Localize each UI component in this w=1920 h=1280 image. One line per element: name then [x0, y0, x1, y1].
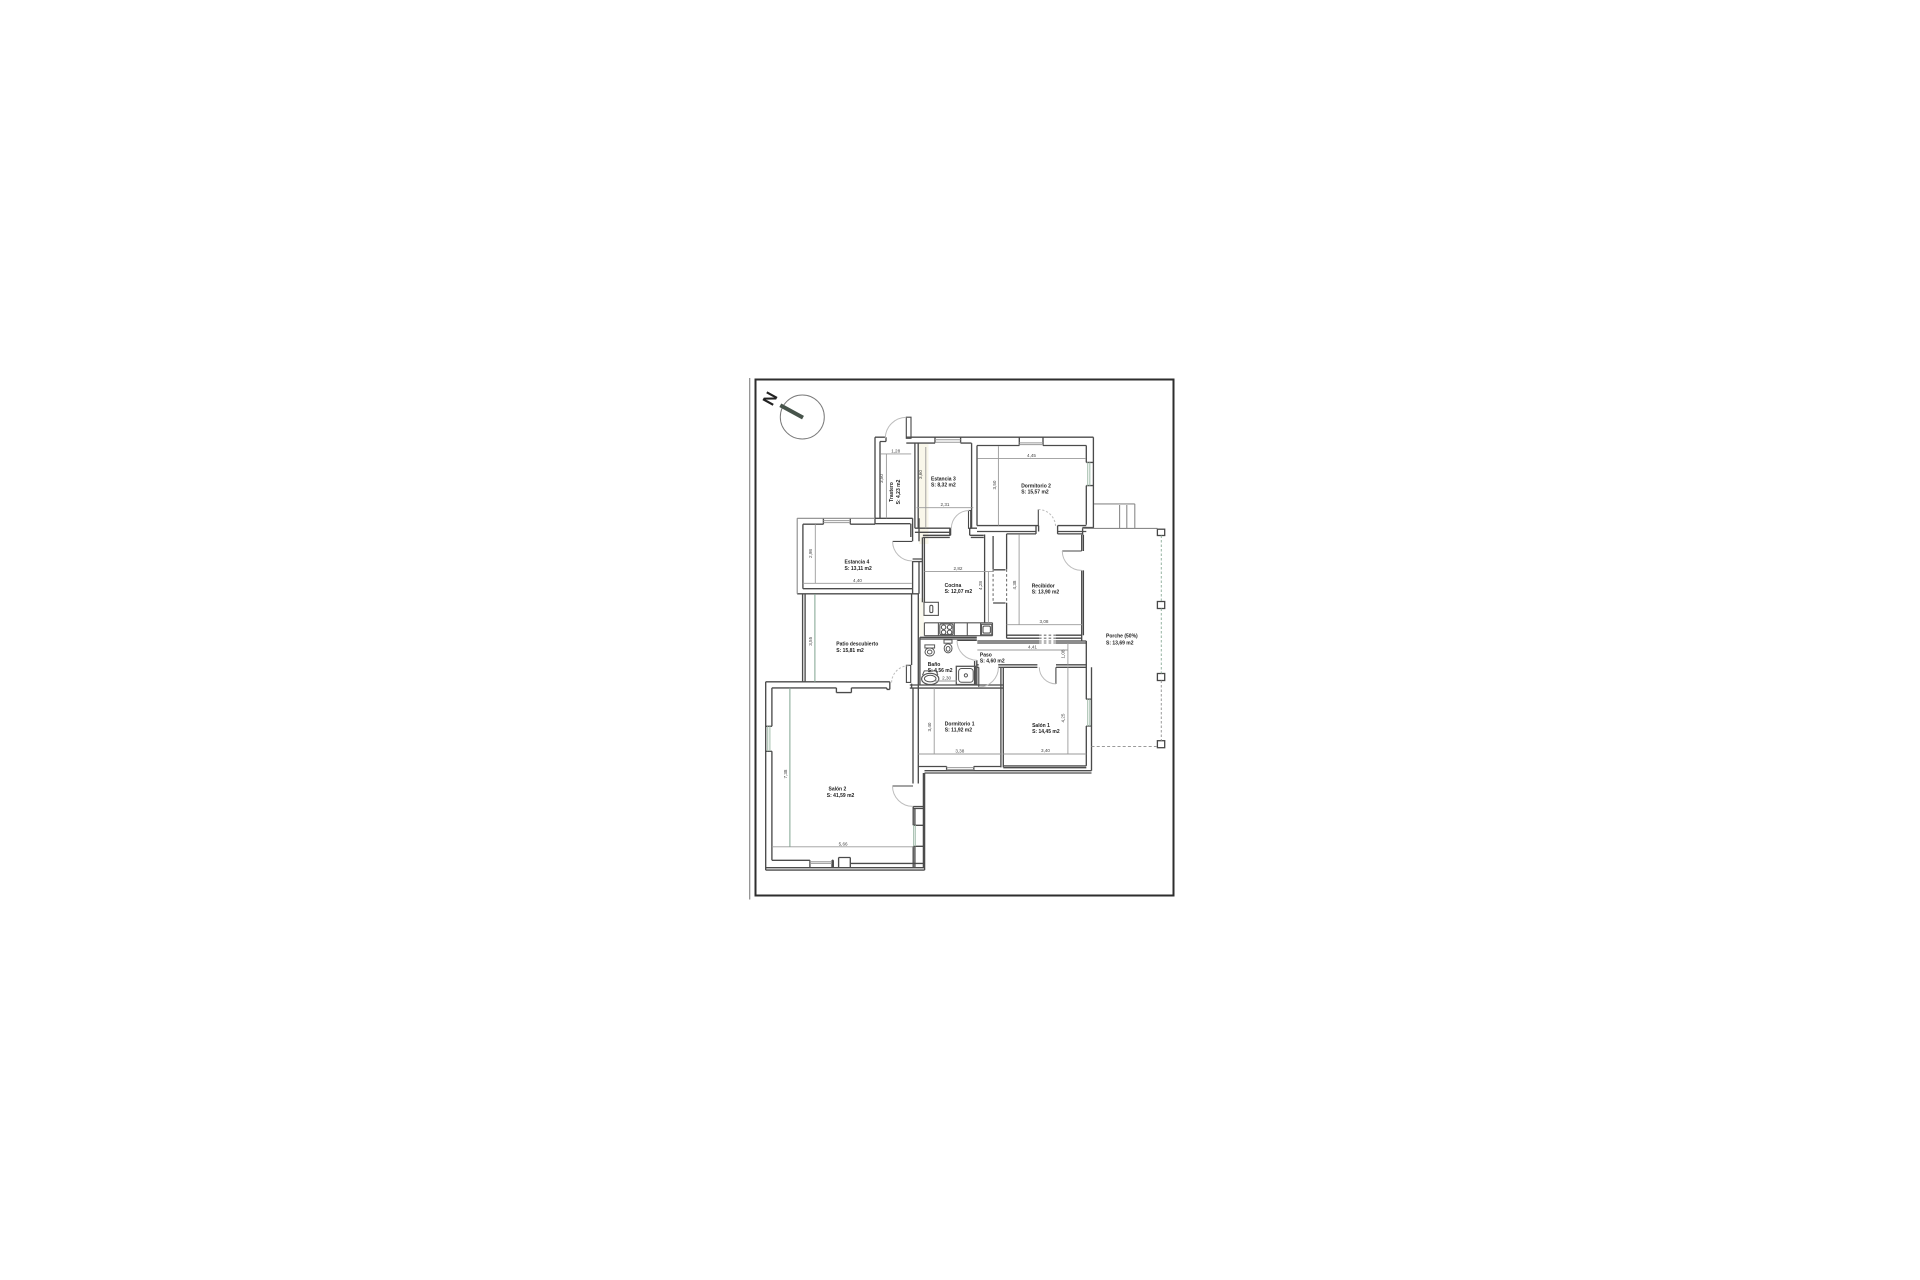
- svg-text:3,40: 3,40: [927, 722, 932, 731]
- svg-text:4,41: 4,41: [1028, 645, 1037, 650]
- svg-text:S: 13,11 m2: S: 13,11 m2: [845, 566, 872, 572]
- svg-text:S: 11,92 m2: S: 11,92 m2: [945, 728, 972, 734]
- svg-text:S: 13,90 m2: S: 13,90 m2: [1032, 590, 1060, 596]
- svg-text:5,66: 5,66: [839, 841, 848, 846]
- svg-text:S: 4,56 m2: S: 4,56 m2: [928, 668, 953, 674]
- svg-text:S: 4,60 m2: S: 4,60 m2: [980, 659, 1005, 665]
- svg-text:S: 15,57 m2: S: 15,57 m2: [1021, 490, 1049, 496]
- svg-text:S: 15,81 m2: S: 15,81 m2: [836, 648, 864, 654]
- svg-text:S: 8,32 m2: S: 8,32 m2: [931, 483, 956, 489]
- svg-text:2,30: 2,30: [942, 676, 951, 681]
- svg-text:4,38: 4,38: [1012, 580, 1017, 589]
- svg-text:Trastero: Trastero: [889, 482, 895, 502]
- svg-text:3,40: 3,40: [1041, 748, 1050, 753]
- svg-text:2,98: 2,98: [808, 549, 813, 558]
- svg-text:1,28: 1,28: [891, 448, 900, 453]
- svg-text:3,50: 3,50: [992, 480, 997, 489]
- svg-text:2,82: 2,82: [954, 566, 963, 571]
- svg-text:Estancia 4: Estancia 4: [845, 560, 870, 566]
- svg-text:Porche (50%): Porche (50%): [1106, 634, 1138, 640]
- svg-text:3,55: 3,55: [808, 636, 813, 645]
- svg-text:Salón 2: Salón 2: [829, 787, 847, 793]
- svg-text:S: 13,69 m2: S: 13,69 m2: [1106, 640, 1134, 646]
- svg-text:1,08: 1,08: [1061, 649, 1066, 658]
- svg-text:3,50: 3,50: [879, 474, 884, 483]
- svg-text:4,28: 4,28: [978, 581, 983, 590]
- svg-text:Patio descubierto: Patio descubierto: [836, 642, 878, 648]
- svg-text:3,38: 3,38: [955, 749, 964, 754]
- svg-text:3,08: 3,08: [1040, 619, 1049, 624]
- svg-text:3,60: 3,60: [918, 470, 923, 479]
- svg-text:7,38: 7,38: [783, 769, 788, 778]
- svg-text:S: 41,59 m2: S: 41,59 m2: [827, 793, 855, 799]
- svg-text:4,25: 4,25: [1061, 713, 1066, 722]
- svg-text:N: N: [759, 389, 782, 409]
- svg-text:S: 12,07 m2: S: 12,07 m2: [945, 589, 973, 595]
- svg-text:4,45: 4,45: [1027, 453, 1036, 458]
- svg-text:S: 4,23 m2: S: 4,23 m2: [896, 479, 902, 504]
- svg-text:4,40: 4,40: [853, 578, 862, 583]
- svg-text:S: 14,45 m2: S: 14,45 m2: [1032, 729, 1060, 735]
- svg-text:2,31: 2,31: [941, 502, 950, 507]
